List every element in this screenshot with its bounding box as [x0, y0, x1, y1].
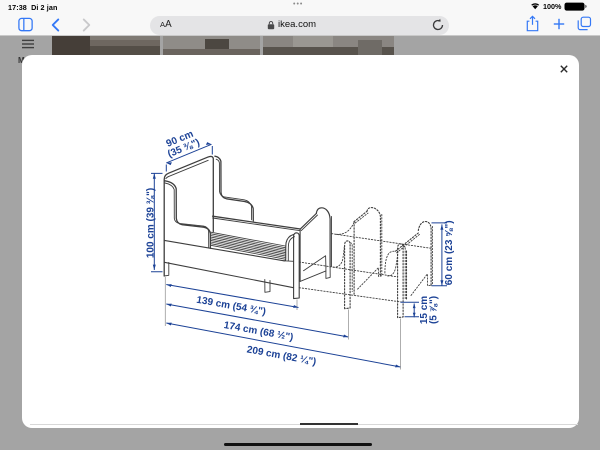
svg-text:100 cm (39 ⅜"): 100 cm (39 ⅜"): [146, 188, 157, 258]
svg-text:139 cm (54 ¾"): 139 cm (54 ¾"): [196, 295, 267, 318]
svg-text:60 cm (23 ⅝"): 60 cm (23 ⅝"): [444, 220, 455, 285]
svg-text:(5 ⅞"): (5 ⅞"): [429, 296, 440, 324]
svg-text:209 cm (82 ¼"): 209 cm (82 ¼"): [246, 344, 317, 368]
